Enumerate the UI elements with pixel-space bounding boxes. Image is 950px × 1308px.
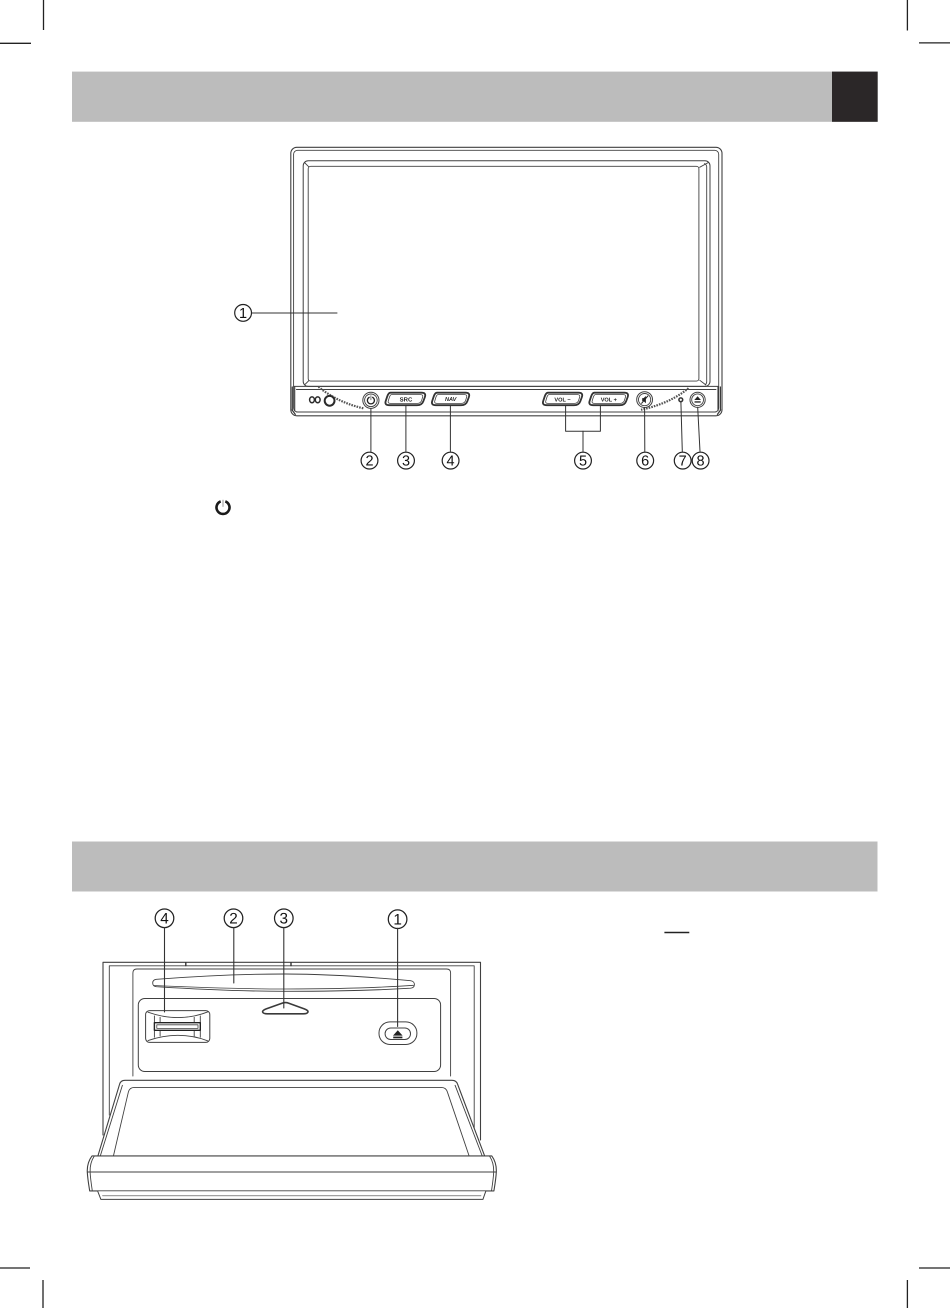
svg-text:VOL −: VOL −	[554, 397, 571, 403]
svg-text:NAV: NAV	[445, 397, 458, 403]
svg-text:4: 4	[160, 911, 169, 928]
svg-text:7: 7	[679, 454, 687, 470]
svg-text:3: 3	[280, 911, 289, 928]
svg-text:6: 6	[641, 454, 649, 470]
svg-text:3: 3	[402, 454, 410, 470]
svg-text:VOL +: VOL +	[601, 397, 618, 403]
svg-text:1: 1	[393, 912, 402, 929]
svg-text:2: 2	[229, 911, 238, 928]
svg-text:4: 4	[447, 454, 455, 470]
svg-text:SRC: SRC	[400, 396, 413, 403]
svg-text:5: 5	[579, 454, 587, 470]
svg-text:2: 2	[365, 454, 373, 470]
svg-text:1: 1	[239, 306, 247, 322]
svg-text:8: 8	[697, 454, 705, 470]
